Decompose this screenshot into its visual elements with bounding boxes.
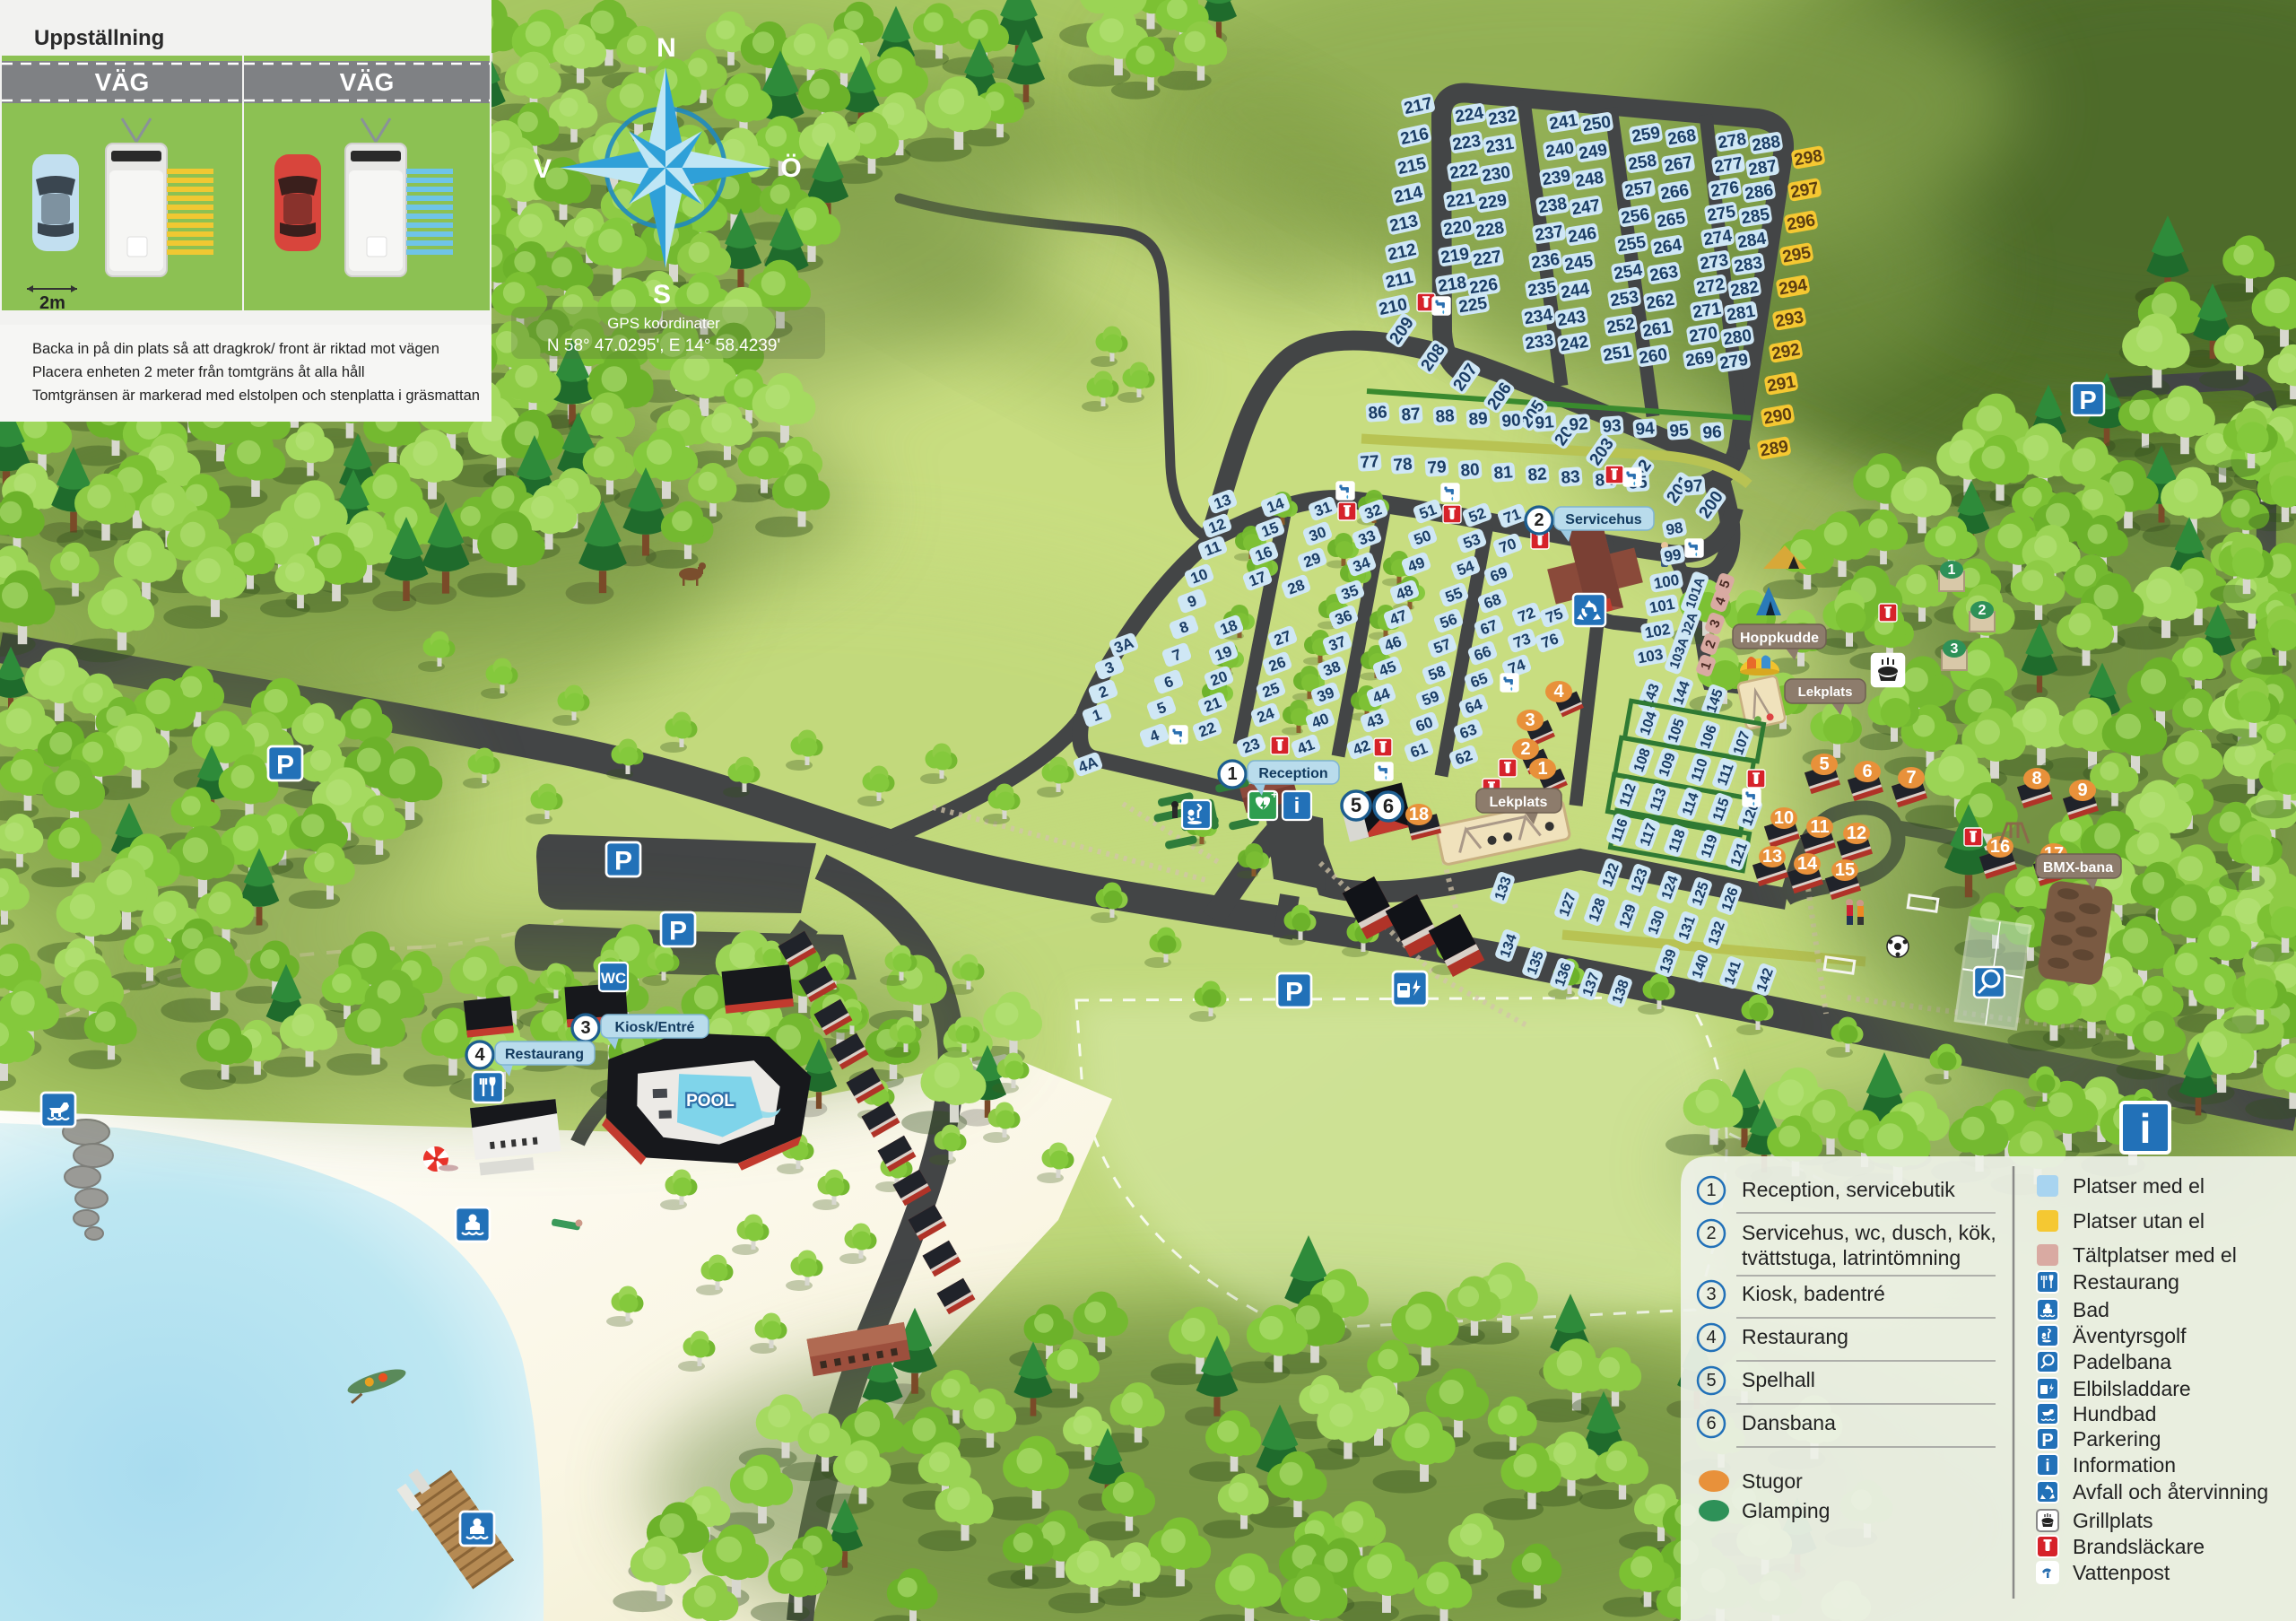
- svg-text:Backa in på din plats så att d: Backa in på din plats så att dragkrok/ f…: [32, 341, 439, 357]
- svg-text:82: 82: [1527, 465, 1548, 484]
- svg-text:10: 10: [1774, 808, 1794, 828]
- svg-text:P: P: [669, 916, 687, 946]
- svg-text:N 58° 47.0295', E 14° 58.4239': N 58° 47.0295', E 14° 58.4239': [547, 336, 780, 355]
- svg-text:P: P: [2041, 1431, 2053, 1451]
- svg-text:2: 2: [1520, 739, 1530, 759]
- svg-text:i: i: [2045, 1457, 2049, 1476]
- svg-text:1: 1: [1227, 764, 1237, 784]
- svg-text:Restaurang: Restaurang: [1742, 1325, 1848, 1348]
- svg-text:i: i: [1294, 794, 1300, 818]
- svg-text:Placera enheten 2 meter från: Placera enheten 2 meter från tomtgräns å…: [32, 364, 365, 380]
- svg-text:Platser utan el: Platser utan el: [2073, 1209, 2205, 1233]
- svg-text:Brandsläckare: Brandsläckare: [2073, 1535, 2205, 1558]
- svg-text:Grillplats: Grillplats: [2073, 1509, 2152, 1532]
- svg-text:4: 4: [1553, 682, 1564, 702]
- svg-text:Tomtgränsen är markerad med el: Tomtgränsen är markerad med elstolpen oc…: [32, 388, 480, 404]
- svg-text:18: 18: [1409, 805, 1429, 824]
- svg-text:Spelhall: Spelhall: [1742, 1368, 1815, 1391]
- svg-text:Platser med el: Platser med el: [2073, 1174, 2205, 1198]
- svg-text:Glamping: Glamping: [1742, 1499, 1830, 1522]
- svg-text:i: i: [2140, 1105, 2152, 1152]
- svg-text:86: 86: [1368, 403, 1388, 423]
- svg-text:83: 83: [1561, 467, 1581, 487]
- svg-text:Kiosk, badentré: Kiosk, badentré: [1742, 1282, 1885, 1305]
- svg-text:93: 93: [1602, 416, 1622, 436]
- svg-text:GPS koordinater: GPS koordinater: [607, 315, 720, 332]
- svg-text:5: 5: [1351, 794, 1361, 816]
- svg-text:P: P: [276, 750, 294, 780]
- svg-text:VÄG: VÄG: [340, 68, 395, 96]
- svg-text:7: 7: [1906, 768, 1916, 788]
- svg-text:77: 77: [1360, 452, 1380, 472]
- svg-text:1: 1: [1706, 1181, 1716, 1200]
- svg-text:Padelbana: Padelbana: [2073, 1350, 2171, 1373]
- svg-text:95: 95: [1669, 421, 1690, 440]
- svg-text:98: 98: [1665, 519, 1684, 538]
- svg-text:2: 2: [1979, 603, 1987, 618]
- svg-text:15: 15: [1835, 860, 1855, 880]
- svg-text:3: 3: [1525, 710, 1535, 730]
- svg-text:Hundbad: Hundbad: [2073, 1402, 2156, 1425]
- svg-text:13: 13: [1762, 847, 1782, 867]
- svg-text:P: P: [614, 846, 632, 876]
- svg-text:8: 8: [2031, 769, 2041, 789]
- svg-text:Kiosk/Entré: Kiosk/Entré: [615, 1020, 695, 1035]
- svg-text:Lekplats: Lekplats: [1490, 795, 1548, 810]
- svg-text:96: 96: [1702, 423, 1723, 442]
- svg-text:97: 97: [1683, 476, 1704, 496]
- svg-text:BMX-bana: BMX-bana: [2043, 860, 2113, 876]
- svg-text:1: 1: [1537, 759, 1547, 779]
- svg-text:V: V: [534, 154, 552, 184]
- svg-text:5: 5: [1819, 754, 1829, 774]
- svg-text:Stugor: Stugor: [1742, 1469, 1803, 1493]
- svg-text:2: 2: [1706, 1224, 1716, 1243]
- svg-text:Servicehus, wc, dusch, kök,: Servicehus, wc, dusch, kök,: [1742, 1221, 1996, 1244]
- svg-text:3: 3: [1706, 1285, 1716, 1304]
- svg-text:Elbilsladdare: Elbilsladdare: [2073, 1377, 2191, 1400]
- svg-text:Restaurang: Restaurang: [505, 1047, 584, 1062]
- svg-text:3: 3: [580, 1018, 590, 1038]
- svg-text:12: 12: [1847, 824, 1866, 843]
- svg-text:Tältplatser med el: Tältplatser med el: [2073, 1243, 2237, 1267]
- svg-text:89: 89: [1468, 409, 1489, 429]
- svg-text:VÄG: VÄG: [95, 68, 150, 96]
- svg-text:79: 79: [1427, 458, 1448, 477]
- svg-text:6: 6: [1862, 762, 1872, 781]
- svg-text:4: 4: [1706, 1328, 1716, 1347]
- svg-text:92: 92: [1569, 414, 1589, 434]
- svg-text:Ö: Ö: [780, 153, 801, 183]
- svg-text:S: S: [653, 280, 671, 309]
- svg-text:Servicehus: Servicehus: [1565, 512, 1641, 527]
- svg-text:Information: Information: [2073, 1453, 2176, 1477]
- svg-text:Bad: Bad: [2073, 1298, 2109, 1321]
- svg-text:9: 9: [2077, 780, 2087, 800]
- svg-text:2m: 2m: [39, 293, 65, 313]
- svg-text:2: 2: [1534, 510, 1544, 530]
- svg-text:P: P: [1285, 977, 1303, 1007]
- svg-text:Reception: Reception: [1258, 766, 1327, 781]
- svg-text:Vattenpost: Vattenpost: [2073, 1561, 2170, 1584]
- svg-text:1: 1: [1948, 562, 1956, 578]
- svg-text:88: 88: [1435, 406, 1456, 426]
- svg-text:tvättstuga, latrintömning: tvättstuga, latrintömning: [1742, 1246, 1961, 1269]
- svg-text:80: 80: [1460, 460, 1481, 480]
- svg-text:94: 94: [1635, 419, 1656, 439]
- svg-text:P: P: [2079, 387, 2096, 415]
- svg-text:Parkering: Parkering: [2073, 1427, 2161, 1451]
- svg-text:81: 81: [1493, 463, 1514, 483]
- svg-text:4: 4: [474, 1045, 485, 1065]
- svg-text:5: 5: [1706, 1371, 1716, 1390]
- svg-text:11: 11: [1810, 817, 1829, 837]
- svg-text:POOL: POOL: [686, 1092, 735, 1111]
- svg-text:78: 78: [1393, 455, 1413, 475]
- svg-text:Restaurang: Restaurang: [2073, 1270, 2179, 1294]
- svg-text:Äventyrsgolf: Äventyrsgolf: [2073, 1324, 2187, 1347]
- svg-text:14: 14: [1797, 854, 1818, 874]
- svg-text:91: 91: [1535, 413, 1555, 432]
- svg-text:+: +: [1271, 788, 1278, 801]
- svg-text:6: 6: [1383, 795, 1394, 817]
- svg-text:N: N: [657, 33, 676, 63]
- svg-text:3: 3: [1951, 641, 1959, 657]
- svg-text:Lekplats: Lekplats: [1798, 684, 1853, 700]
- svg-text:87: 87: [1401, 405, 1422, 424]
- svg-text:Reception, servicebutik: Reception, servicebutik: [1742, 1178, 1955, 1201]
- svg-text:Uppställning: Uppställning: [34, 26, 164, 50]
- svg-text:99: 99: [1663, 545, 1683, 565]
- svg-text:WC: WC: [601, 970, 626, 987]
- svg-text:Dansbana: Dansbana: [1742, 1411, 1836, 1434]
- svg-text:Avfall och återvinning: Avfall och återvinning: [2073, 1480, 2268, 1503]
- svg-text:Hoppkudde: Hoppkudde: [1740, 631, 1819, 646]
- svg-text:6: 6: [1706, 1414, 1716, 1434]
- svg-text:90: 90: [1501, 411, 1522, 431]
